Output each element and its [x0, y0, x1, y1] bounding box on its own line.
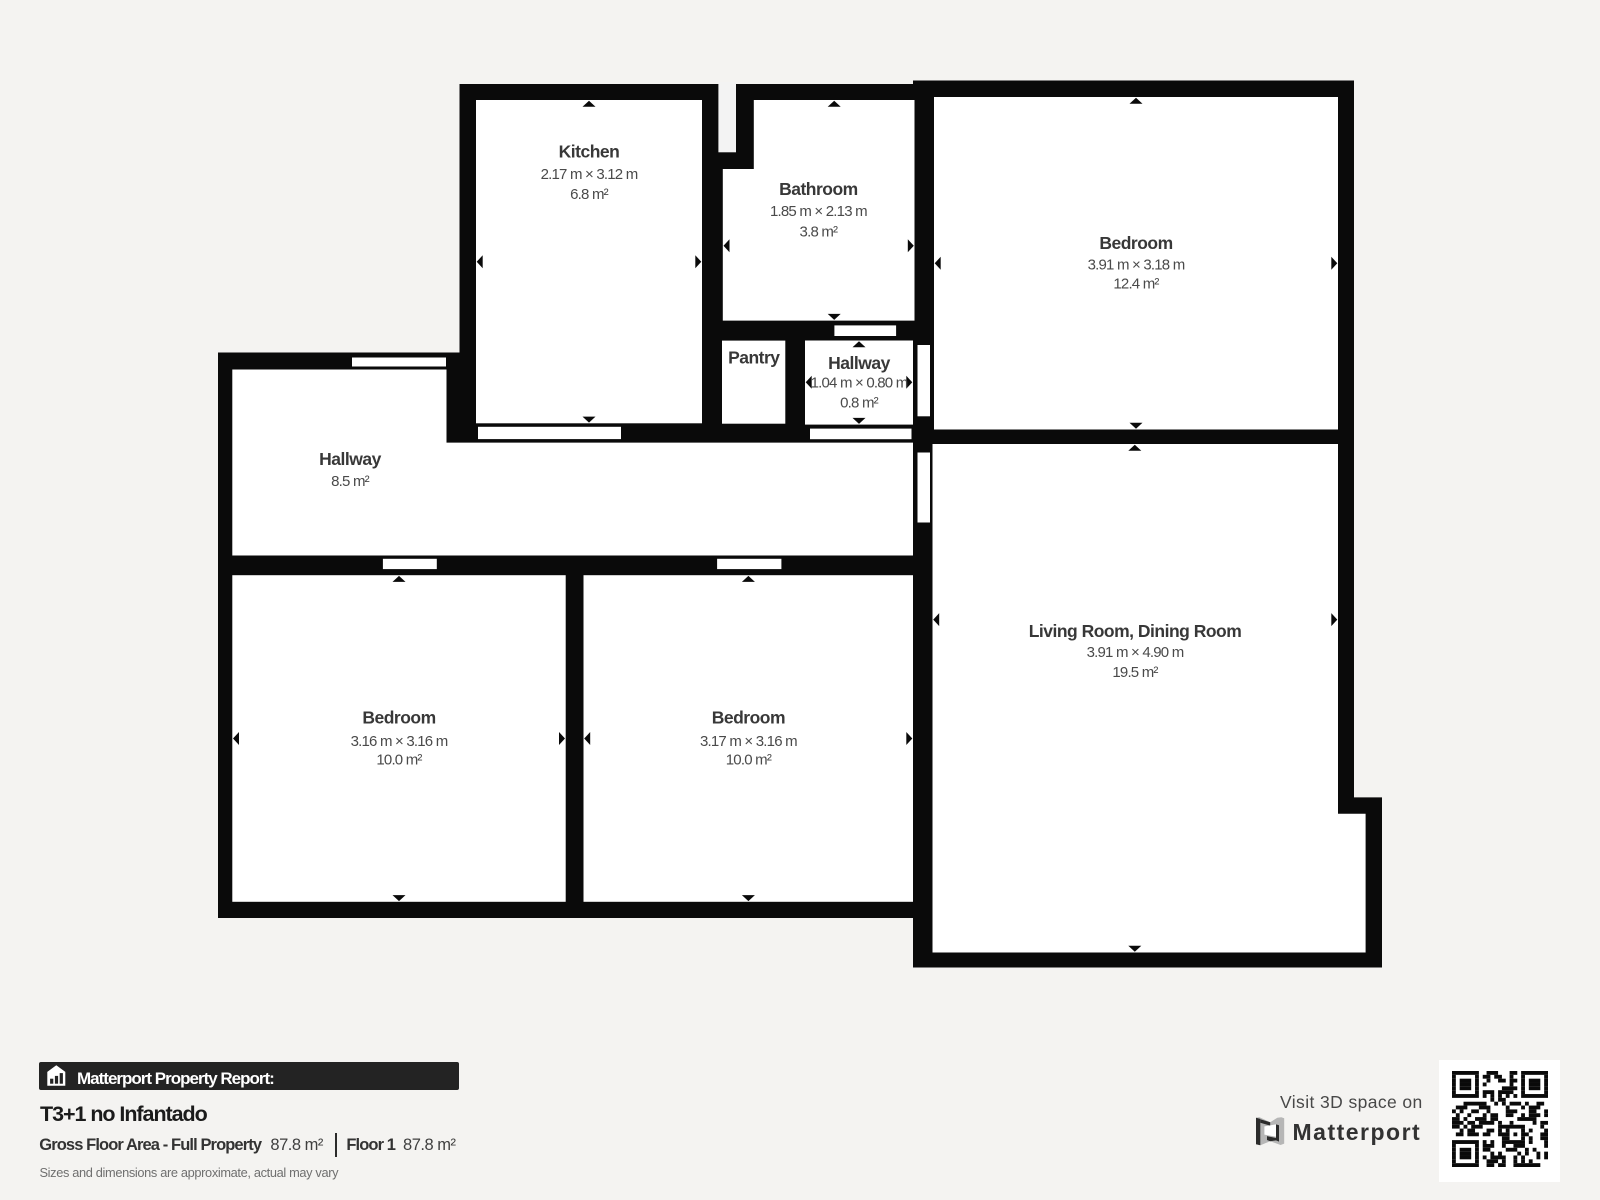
svg-text:3.91 m × 4.90 m: 3.91 m × 4.90 m [1087, 644, 1184, 661]
svg-text:Kitchen: Kitchen [559, 142, 620, 162]
svg-text:6.8 m²: 6.8 m² [570, 186, 609, 203]
svg-text:3.17 m × 3.16 m: 3.17 m × 3.16 m [700, 733, 797, 750]
svg-text:Bathroom: Bathroom [779, 179, 858, 199]
svg-text:3.8 m²: 3.8 m² [800, 224, 839, 241]
svg-text:8.5 m²: 8.5 m² [331, 473, 370, 490]
svg-text:0.8 m²: 0.8 m² [840, 395, 879, 412]
svg-text:Bedroom: Bedroom [712, 708, 785, 728]
svg-text:19.5 m²: 19.5 m² [1112, 664, 1158, 681]
svg-text:3.91 m × 3.18 m: 3.91 m × 3.18 m [1088, 257, 1185, 274]
svg-text:1.85 m × 2.13 m: 1.85 m × 2.13 m [770, 203, 867, 220]
svg-text:Hallway: Hallway [319, 449, 381, 469]
svg-text:Bedroom: Bedroom [362, 708, 435, 728]
svg-text:Pantry: Pantry [728, 348, 780, 368]
svg-text:1.04 m × 0.80 m: 1.04 m × 0.80 m [811, 375, 908, 392]
svg-text:10.0 m²: 10.0 m² [376, 752, 422, 769]
svg-text:12.4 m²: 12.4 m² [1113, 276, 1159, 293]
svg-text:Living Room, Dining Room: Living Room, Dining Room [1029, 621, 1242, 641]
svg-text:Hallway: Hallway [828, 353, 890, 373]
svg-text:2.17 m × 3.12 m: 2.17 m × 3.12 m [541, 166, 638, 183]
svg-text:3.16 m × 3.16 m: 3.16 m × 3.16 m [351, 733, 448, 750]
svg-text:10.0 m²: 10.0 m² [726, 752, 772, 769]
svg-text:Bedroom: Bedroom [1099, 233, 1172, 253]
